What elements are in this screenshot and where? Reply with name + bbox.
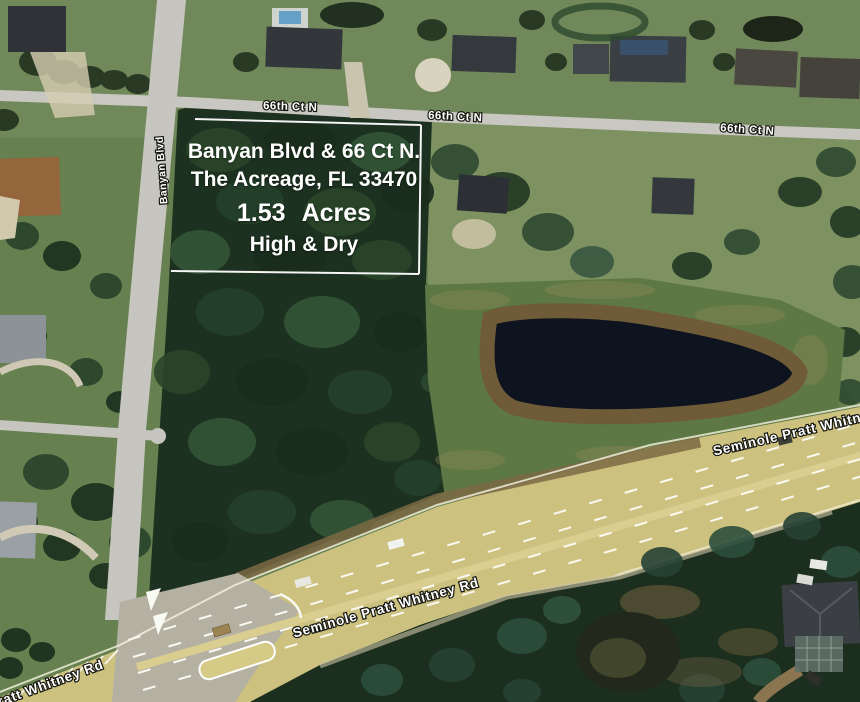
overlay-condition-line: High & Dry (176, 232, 432, 258)
road-stub-end (150, 428, 166, 444)
listing-overlay: Banyan Blvd & 66 Ct N. The Acreage, FL 3… (176, 139, 432, 258)
murky-pond-shallow (590, 638, 646, 678)
aerial-imagery: 66th Ct N 66th Ct N 66th Ct N Banyan Blv… (0, 0, 860, 702)
house-top-left (8, 6, 66, 52)
swimming-pool (279, 11, 301, 24)
house-top-7 (799, 57, 860, 99)
house-left-2 (0, 315, 46, 363)
house-mid-1 (457, 174, 509, 213)
overlay-city-line: The Acreage, FL 33470 (176, 167, 432, 193)
house-top-4 (573, 44, 609, 74)
overlay-address-line: Banyan Blvd & 66 Ct N. (176, 139, 432, 165)
sand-patch (415, 58, 451, 92)
patio-clearing (452, 219, 496, 249)
overlay-acreage-line: 1.53 Acres (176, 198, 432, 229)
solar-panels (620, 40, 668, 55)
small-pond-top-right (743, 16, 803, 42)
road-label-66th-ct-n-1: 66th Ct N (263, 100, 317, 114)
house-top-2 (265, 27, 342, 70)
small-pond-top (320, 2, 384, 28)
house-mid-2 (651, 177, 694, 214)
house-top-3 (451, 35, 516, 73)
house-top-6 (734, 48, 798, 87)
satellite-map: 66th Ct N 66th Ct N 66th Ct N Banyan Blv… (0, 0, 860, 702)
